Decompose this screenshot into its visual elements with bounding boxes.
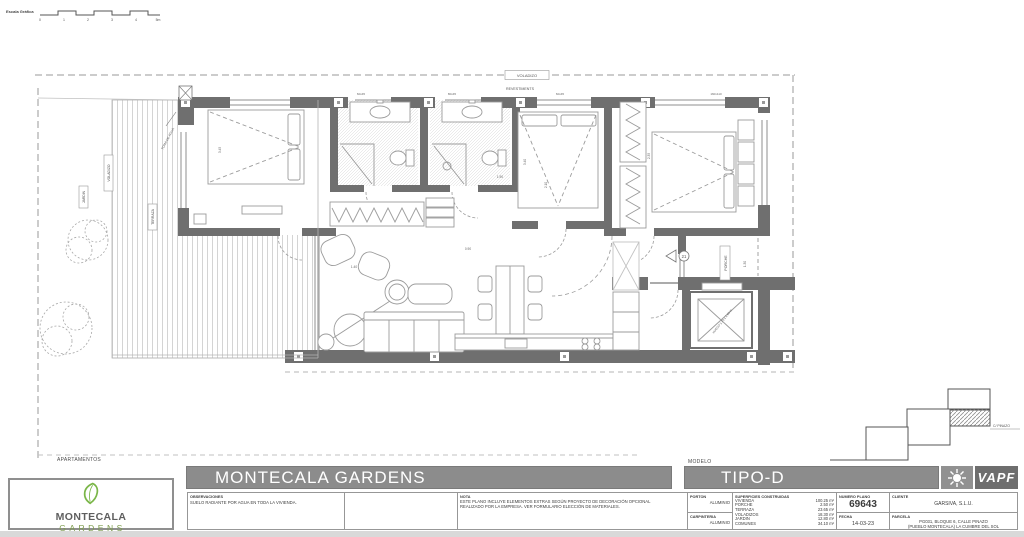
toilet [498,150,506,166]
observaciones-text: SUELO RADIANTE POR AGUA EN TODA LA VIVIE… [188,499,344,506]
chair [478,304,492,320]
svg-text:1.40: 1.40 [351,265,357,269]
model-value: TIPO-D [721,468,785,488]
logo-line1: MONTECALA [10,511,172,523]
svg-text:2: 2 [87,18,89,22]
project-title: MONTECALA GARDENS [215,468,426,488]
toilet [406,150,414,166]
porton-cell: PORTON ALUMINIO [688,493,732,512]
parcela-line2: (PUEBLO MONTECALA) LA CUMBRE DEL SOL [890,524,1017,529]
svg-text:1.30: 1.30 [743,261,747,267]
svg-text:VOLADIZO: VOLADIZO [107,164,111,182]
scale-bar: Escala Gráfica 0 1 2 3 4 5m [6,9,161,22]
svg-text:2.35: 2.35 [647,153,651,159]
svg-text:3: 3 [111,18,113,22]
fecha-cell: FECHA 14-03-23 [837,512,889,530]
leaf-icon [78,481,104,505]
svg-text:160x110: 160x110 [710,92,722,96]
svg-text:21: 21 [682,254,687,259]
floor-plan: Escala Gráfica 0 1 2 3 4 5m [0,0,1024,465]
vapf-sun-box [941,466,973,489]
bedroom-2 [518,112,598,208]
tree-icon [66,220,108,263]
svg-text:Escala Gráfica: Escala Gráfica [6,9,34,14]
svg-text:0: 0 [39,18,41,22]
superficies-row: COMUNES34.10 m² [733,522,836,527]
cliente-box: CLIENTE GARSIVA, S.L.U. PARCELA PG031, B… [889,492,1018,530]
bottom-strip [0,531,1024,537]
nota-box: NOTA ESTE PLANO INCLUYE ELEMENTOS EXTRAS… [457,492,688,530]
parcela-cell: PARCELA PG031, BLOQUE 6, CALLE PINAZO (P… [890,512,1017,530]
svg-text:3.45: 3.45 [218,147,222,153]
bed [652,132,736,212]
counter [455,334,613,350]
drawing-sheet: Escala Gráfica 0 1 2 3 4 5m [0,0,1024,537]
chair [478,276,492,292]
svg-text:3.40: 3.40 [523,159,527,165]
site-key-current-block [948,409,990,426]
svg-text:C/ PINAZO: C/ PINAZO [993,424,1010,428]
empty-box [344,492,458,530]
chair [528,276,542,292]
fecha-label: FECHA [837,513,889,519]
svg-text:VOLADIZO: VOLADIZO [517,73,537,78]
nota-line2: REALIZADO POR LA EMPRESA. VER FORMULARIO… [460,504,685,509]
svg-text:4: 4 [135,18,137,22]
site-key: C/ PINAZO [830,389,1020,460]
model-title-bar: TIPO-D [684,466,939,489]
montecala-logo-box: MONTECALA GARDENS [8,478,174,530]
svg-text:1.90: 1.90 [497,175,503,179]
carpinteria-cell: CARPINTERIA ALUMINIO [688,512,732,530]
svg-text:TERRAZA: TERRAZA [151,208,155,225]
coffee-table [408,284,452,304]
superficies-box: SUPERFICIES CONSTRUIDAS VIVIENDA100.25 m… [732,492,837,530]
sink [505,339,527,348]
apartments-label: APARTAMENTOS [57,457,101,463]
numero-plano-box: NUMERO PLANO 69643 FECHA 14-03-23 [836,492,890,530]
svg-text:2.10: 2.10 [544,182,548,188]
numero-plano-value: 69643 [837,499,889,510]
svg-text:PORCHE: PORCHE [724,255,728,271]
svg-text:1: 1 [63,18,65,22]
porton-value: ALUMINIO [688,499,732,506]
svg-text:REVESTIMENTS: REVESTIMENTS [506,87,535,91]
cliente-label: CLIENTE [890,493,1017,499]
sun-icon [947,468,967,488]
svg-text:JARDIN: JARDIN [82,190,86,203]
svg-text:0.90: 0.90 [465,247,471,251]
svg-text:60x45: 60x45 [357,92,366,96]
model-label: MODELO [688,459,711,465]
observaciones-box: OBSERVACIONES SUELO RADIANTE POR AGUA EN… [187,492,345,530]
cliente-cell: CLIENTE GARSIVA, S.L.U. [890,493,1017,512]
svg-text:80x45: 80x45 [448,92,457,96]
carpinteria-value: ALUMINIO [688,519,732,526]
tree-icon [40,302,92,356]
stove-burner [582,338,588,344]
carpinteria-box: PORTON ALUMINIO CARPINTERIA ALUMINIO [687,492,733,530]
wardrobe [620,166,646,228]
svg-text:60x45: 60x45 [556,92,565,96]
project-title-bar: MONTECALA GARDENS [186,466,672,489]
round-chair [334,314,366,346]
numero-plano-cell: NUMERO PLANO 69643 [837,493,889,512]
chair [528,304,542,320]
fecha-value: 14-03-23 [837,521,889,527]
dresser [242,206,282,214]
nightstand [194,214,206,224]
cliente-value: GARSIVA, S.L.U. [890,501,1017,507]
vapf-logo: VAPF [975,466,1018,489]
svg-text:5m: 5m [156,18,161,22]
tall-cabinets [613,292,639,350]
elevator-shaft: HUECO 1.70 x 1.60 m [690,283,752,348]
wardrobe-corridor [330,198,454,227]
